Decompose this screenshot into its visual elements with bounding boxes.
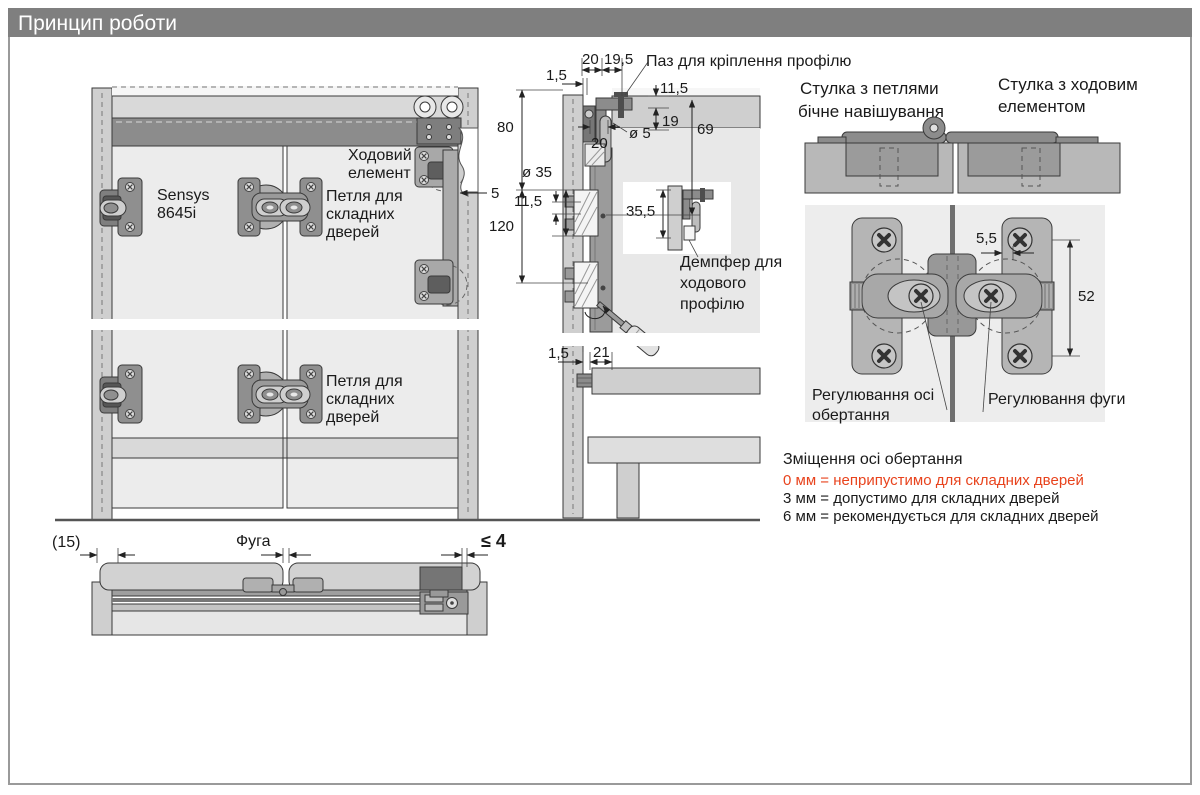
title-bar [8,8,1192,37]
label-leaf-left-line1: Стулка з петлями [800,79,939,98]
label-runner-line1: Ходовий [348,147,412,164]
dim-1-5b: 1,5 [548,345,569,362]
dim-5-5: 5,5 [976,230,997,247]
label-hinge-bottom-line1: Петля для [326,373,403,390]
dim-20: 20 [582,51,599,68]
label-slot: Паз для кріплення профілю [646,53,851,70]
offset-heading: Зміщення осі обертання [783,451,963,468]
dim-20b: 20 [591,135,608,152]
label-damper-line3: профілю [680,296,745,313]
dim-52: 52 [1078,288,1095,305]
dim-19: 19 [662,113,679,130]
dim-le4: ≤ 4 [481,531,506,551]
dim-dia35: ø 35 [522,164,552,181]
dim-1-5: 1,5 [546,67,567,84]
section-break [85,319,485,330]
dim-19-5: 19,5 [604,51,633,68]
dim-fuga: Фуга [236,533,271,550]
label-sensys-line1: Sensys [157,187,209,204]
label-hinge-bottom-line2: складних [326,391,395,408]
section-break-side [550,333,765,346]
label-leaf-right-line1: Стулка з ходовим [998,75,1138,94]
dim-11-5-top: 11,5 [660,80,688,97]
damper [684,226,695,240]
offset-line-6mm: 6 мм = рекомендується для складних двере… [783,508,1098,525]
label-axis-adjust-line2: обертання [812,407,890,424]
dim-dia5: ø 5 [629,125,651,142]
page: Принцип роботи [0,0,1200,795]
hinge-top-view: 5,5 52 Регулювання осі обертання Регулюв… [805,205,1125,424]
diagram-canvas: Принцип роботи [0,0,1200,795]
page-title: Принцип роботи [18,12,177,35]
damper-inset: 35,5 [623,182,731,257]
label-hinge-bottom-line3: дверей [326,409,379,426]
dim-80: 80 [497,119,514,136]
front-view: Sensys 8645i Ходовий елемент Петля для с… [85,86,499,520]
plan-running-element [420,567,462,590]
label-gap-adjust: Регулювання фуги [988,391,1125,408]
offset-line-0mm: 0 мм = неприпустимо для складних дверей [783,472,1084,489]
label-leaf-right-line2: елементом [998,97,1086,116]
label-sensys-line2: 8645i [157,205,196,222]
plan-track [112,589,468,635]
label-hinge-top-line1: Петля для [326,188,403,205]
label-damper-line2: ходового [680,275,746,292]
label-hinge-top-line3: дверей [326,224,379,241]
label-hinge-top-line2: складних [326,206,395,223]
dim-11-5-left: 11,5 [514,193,542,210]
dim-15: (15) [52,534,80,551]
label-leaf-left-line2: бічне навішування [798,102,944,121]
dim-35-5: 35,5 [626,203,655,220]
dim-120: 120 [489,218,514,235]
label-runner-line2: елемент [348,165,411,182]
label-damper-line1: Демпфер для [680,254,782,271]
offset-line-3mm: 3 мм = допустимо для складних дверей [783,490,1060,507]
dim-21: 21 [593,344,610,361]
dim-69: 69 [697,121,714,138]
shelf-band [112,438,458,458]
label-axis-adjust-line1: Регулювання осі [812,387,934,404]
top-running-track [112,86,458,146]
svg-text:5: 5 [491,185,499,202]
